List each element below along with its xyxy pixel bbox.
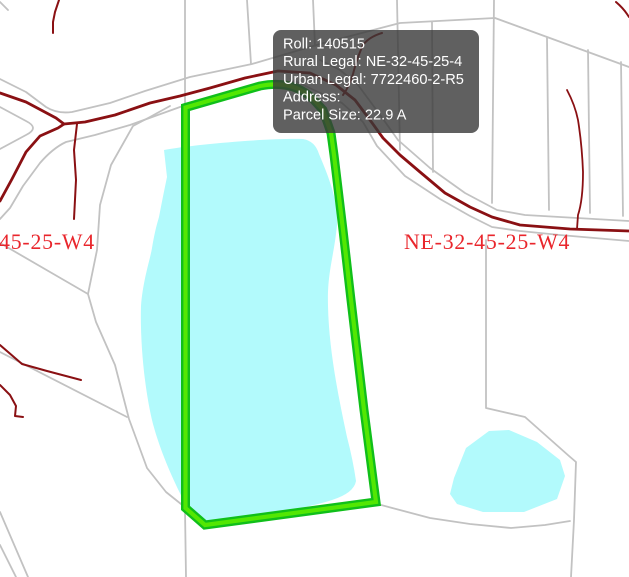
svg-text:NE-32-45-25-W4: NE-32-45-25-W4 [404, 230, 570, 254]
svg-text:Rural Legal: NE-32-45-25-4: Rural Legal: NE-32-45-25-4 [283, 54, 462, 70]
svg-text:Roll: 140515: Roll: 140515 [283, 37, 365, 53]
svg-text:Urban Legal: 7722460-2-R5: Urban Legal: 7722460-2-R5 [283, 72, 464, 88]
svg-text:Address:: Address: [283, 90, 341, 106]
svg-text:45-25-W4: 45-25-W4 [0, 230, 95, 254]
svg-text:Parcel Size: 22.9 A: Parcel Size: 22.9 A [283, 107, 407, 123]
